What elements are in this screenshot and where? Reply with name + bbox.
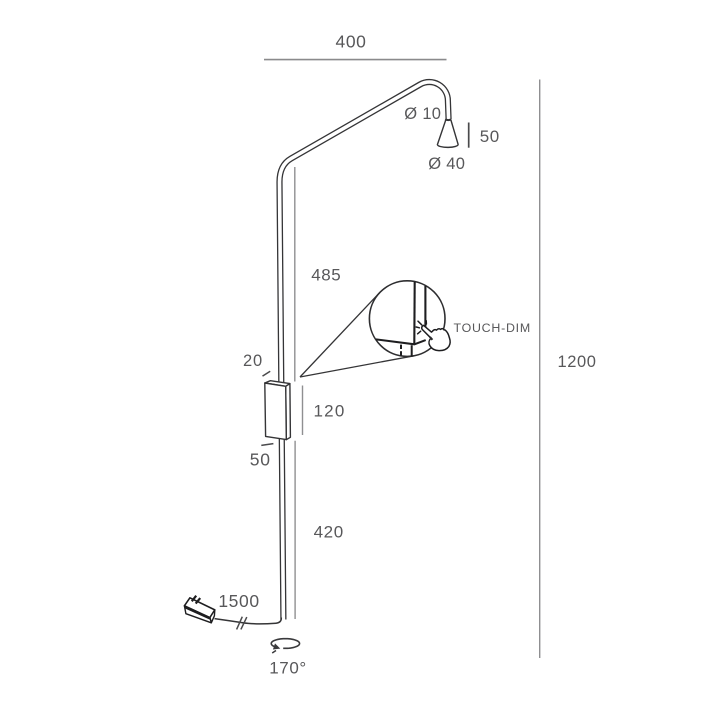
svg-text:TOUCH-DIM: TOUCH-DIM bbox=[454, 321, 531, 335]
svg-text:Ø 10: Ø 10 bbox=[404, 105, 441, 123]
svg-text:1500: 1500 bbox=[218, 591, 259, 611]
svg-text:170°: 170° bbox=[269, 659, 307, 678]
svg-text:1200: 1200 bbox=[557, 353, 596, 371]
svg-text:485: 485 bbox=[311, 266, 341, 285]
svg-text:420: 420 bbox=[314, 522, 344, 541]
svg-text:Ø 40: Ø 40 bbox=[428, 155, 465, 173]
svg-text:50: 50 bbox=[480, 127, 500, 146]
svg-text:120: 120 bbox=[314, 401, 346, 420]
svg-text:50: 50 bbox=[250, 450, 271, 470]
svg-text:20: 20 bbox=[243, 352, 263, 370]
svg-text:400: 400 bbox=[336, 32, 367, 52]
